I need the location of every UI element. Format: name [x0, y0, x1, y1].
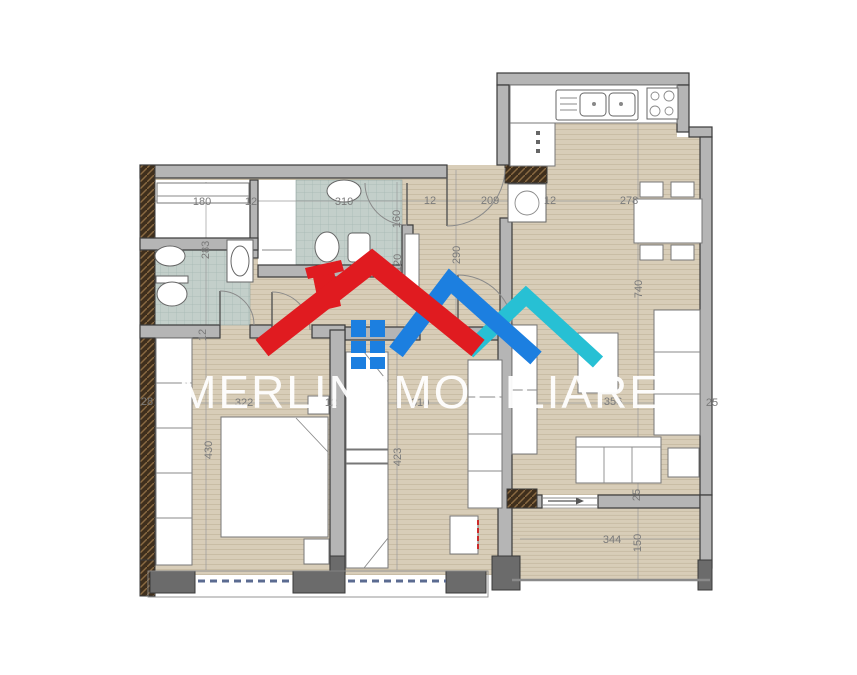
- dimension-label: 150: [632, 534, 644, 552]
- kitchen-cabinet: [510, 123, 555, 166]
- dining-chair-2: [671, 182, 694, 197]
- dimension-label: 290: [451, 246, 463, 264]
- dimension-label: 12: [245, 196, 257, 208]
- wall-kitchen-top: [497, 73, 689, 85]
- dimension-label: 180: [193, 196, 211, 208]
- faucet-dot-1: [592, 102, 596, 106]
- pier-living-left: [492, 556, 520, 590]
- floor-shower-niche: [258, 180, 296, 265]
- floor-plan-image: 1801231012209122782831601202907401228322…: [0, 0, 857, 675]
- dimension-label: 740: [633, 280, 645, 298]
- floor-entry: [447, 165, 510, 180]
- wall-kitchen-left: [497, 85, 509, 165]
- single-bed-2: [346, 464, 388, 568]
- dimension-label: 25: [631, 489, 643, 501]
- wall-kitchen-right-upper: [677, 85, 689, 132]
- pier-terrace-right: [698, 560, 712, 590]
- dimension-label: 160: [391, 210, 403, 228]
- wall-left-structural: [140, 165, 155, 590]
- bedroom1-bench: [304, 539, 329, 564]
- wall-top-right-stub: [689, 127, 712, 137]
- cabinet-handle-3: [536, 149, 540, 153]
- dimension-label: 28: [141, 396, 153, 408]
- sofa: [576, 437, 661, 483]
- wall-top-left: [140, 165, 447, 178]
- desk-bedroom2: [450, 516, 478, 554]
- washing-machine: [508, 184, 546, 222]
- dimension-label: 12: [424, 195, 436, 207]
- dimension-label: 12: [197, 329, 209, 341]
- dining-chair-4: [671, 245, 694, 260]
- dimension-label: 278: [620, 195, 638, 207]
- cabinet-handle-2: [536, 140, 540, 144]
- side-table: [668, 448, 699, 477]
- dining-chair-3: [640, 245, 663, 260]
- nightstand-bedroom2: [346, 450, 388, 463]
- washbasin-bath1: [155, 246, 185, 266]
- toilet-bath1: [157, 282, 187, 306]
- dining-table: [634, 199, 702, 243]
- dimension-label: 430: [203, 441, 215, 459]
- cabinet-handle-1: [536, 131, 540, 135]
- shower-basin-bath1: [231, 246, 249, 276]
- pier-window-2: [293, 571, 345, 593]
- sliding-door-arrowhead: [576, 498, 584, 505]
- pier-window-1: [150, 571, 195, 593]
- dimension-label: 12: [544, 195, 556, 207]
- dimension-label: 209: [481, 195, 499, 207]
- dining-chair-1: [640, 182, 663, 197]
- wall-terrace-right: [700, 495, 712, 568]
- column-entry: [505, 165, 547, 183]
- brand-name: MERLIN IMOBILIARE: [178, 366, 662, 418]
- pier-window-3: [446, 571, 486, 593]
- faucet-dot-2: [619, 102, 623, 106]
- toilet-bath2: [315, 232, 339, 262]
- dimension-label: 25: [706, 397, 718, 409]
- wall-living-bottom-b: [598, 495, 700, 508]
- pier-terrace-left: [507, 489, 537, 508]
- wall-right-outer: [700, 137, 712, 495]
- dimension-label: 344: [603, 534, 621, 546]
- dimension-label: 283: [200, 241, 212, 259]
- dimension-label: 423: [392, 448, 404, 466]
- dimension-label: 310: [335, 196, 353, 208]
- floor-plan-svg: 1801231012209122782831601202907401228322…: [0, 0, 857, 675]
